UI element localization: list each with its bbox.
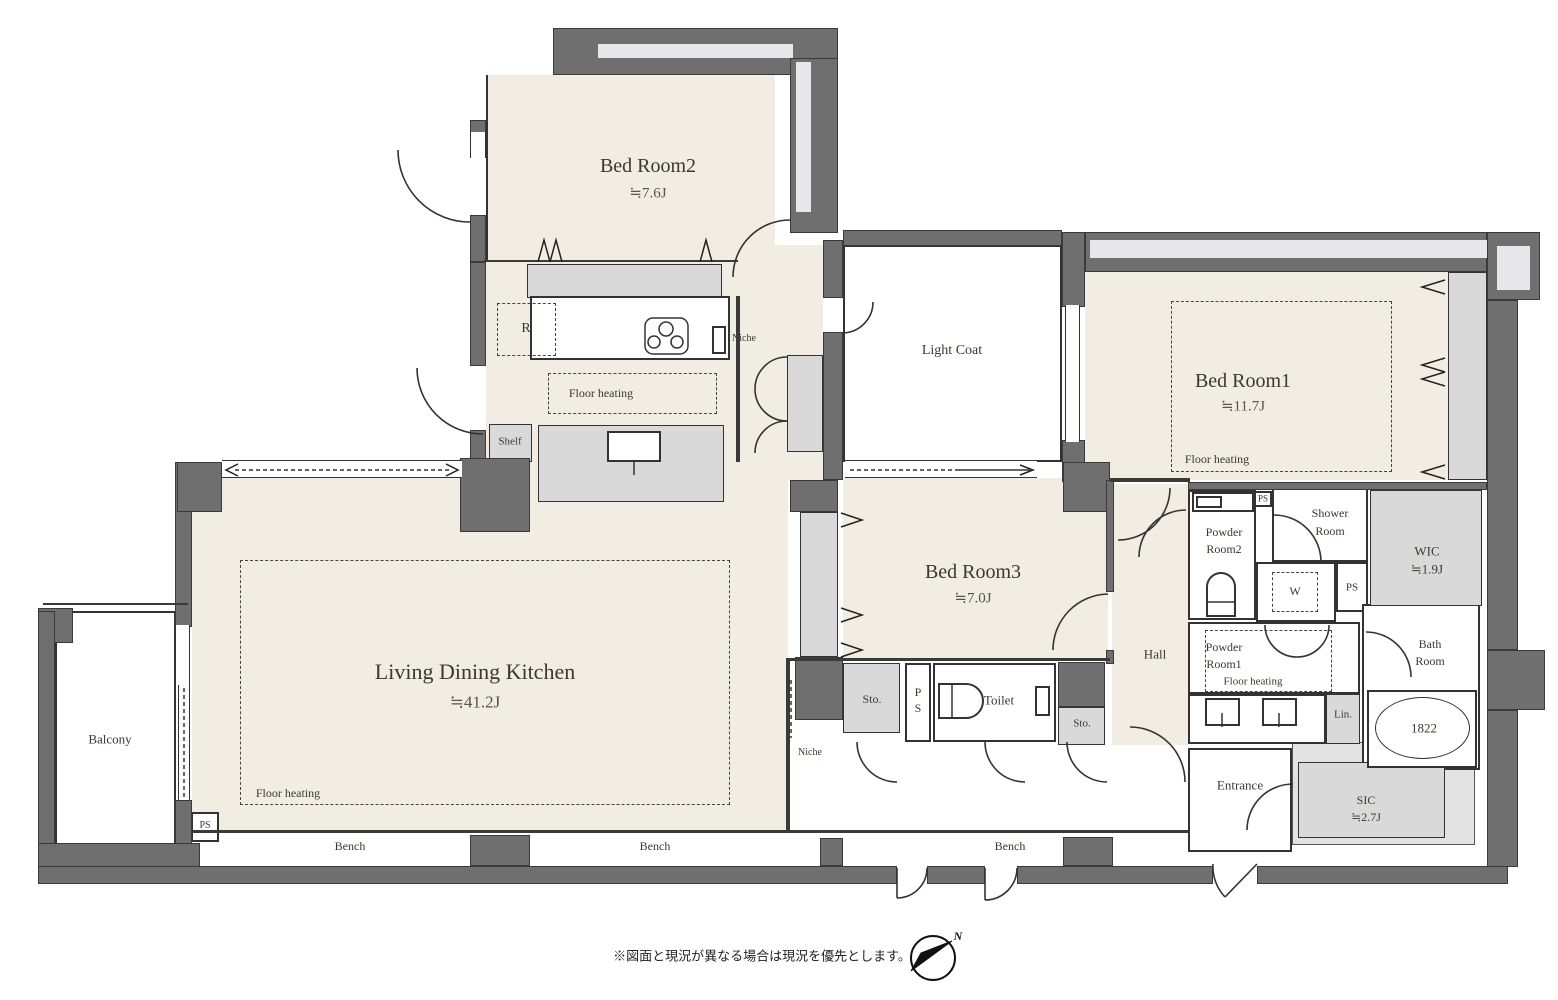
entrance-label: Entrance	[1217, 779, 1263, 792]
wic-label: WIC	[1414, 545, 1439, 558]
linework-overlay	[0, 0, 1558, 1000]
compass-icon	[911, 936, 955, 980]
bedroom2-label: Bed Room2	[600, 156, 696, 176]
niche-corridor-label: Niche	[798, 748, 822, 758]
linen-label: Lin.	[1334, 710, 1352, 721]
bench-label-1: Bench	[335, 840, 366, 852]
powder2-label-2: Room2	[1206, 543, 1241, 555]
bedroom3-area: ≒7.0J	[954, 592, 991, 607]
storage1-label: Sto.	[862, 693, 881, 705]
ps-corridor-label: PS	[912, 685, 924, 717]
bench-label-2: Bench	[640, 840, 671, 852]
bath-label-1: Bath	[1419, 638, 1442, 650]
caption: ※図面と現況が異なる場合は現況を優先とします。	[613, 950, 911, 963]
fixture-lines	[634, 318, 1279, 727]
toilet-label: Toilet	[984, 694, 1014, 707]
ps-mid-label: PS	[1346, 583, 1358, 594]
powder1-label-1: Powder	[1206, 641, 1243, 653]
folding-door-arrows	[226, 240, 1445, 657]
balcony-label: Balcony	[88, 733, 131, 746]
floor-heating-kitchen-label: Floor heating	[569, 387, 633, 399]
bedroom1-area: ≒11.7J	[1221, 400, 1265, 415]
refrigerator-label: R	[521, 322, 530, 336]
hall-label: Hall	[1144, 648, 1166, 661]
ps-powder2-label: PS	[1258, 495, 1268, 504]
bedroom1-label: Bed Room1	[1195, 371, 1291, 391]
ldk-area: ≒41.2J	[450, 694, 501, 711]
sic-area: ≒2.7J	[1351, 811, 1381, 823]
powder1-label-2: Room1	[1206, 658, 1241, 670]
ps-balcony-label: PS	[199, 821, 210, 831]
floor-heating-powder1-label: Floor heating	[1224, 677, 1283, 688]
bedroom3-label: Bed Room3	[925, 562, 1021, 582]
wic-area: ≒1.9J	[1411, 563, 1443, 576]
shelf-label: Shelf	[498, 437, 521, 448]
floor-heating-br1-label: Floor heating	[1185, 453, 1249, 465]
bath-label-2: Room	[1415, 655, 1444, 667]
bathtub-size-label: 1822	[1411, 722, 1437, 735]
bench-label-3: Bench	[995, 840, 1026, 852]
floor-heating-ldk-label: Floor heating	[256, 787, 320, 799]
sic-label: SIC	[1357, 794, 1376, 806]
niche-kitchen-label: Niche	[732, 334, 756, 344]
floor-plan: Bed Room2 ≒7.6J Bed Room1 ≒11.7J Bed Roo…	[0, 0, 1558, 1000]
light-coat-label: Light Coat	[922, 344, 982, 358]
storage2-label: Sto.	[1073, 719, 1090, 730]
shower-label-1: Shower	[1312, 507, 1349, 519]
shower-label-2: Room	[1315, 525, 1344, 537]
north-label: N	[954, 930, 963, 942]
washer-label: W	[1289, 585, 1300, 597]
powder2-label-1: Powder	[1206, 526, 1243, 538]
bedroom2-area: ≒7.6J	[629, 187, 666, 202]
window-dashes	[184, 470, 958, 798]
ldk-label: Living Dining Kitchen	[375, 661, 575, 683]
